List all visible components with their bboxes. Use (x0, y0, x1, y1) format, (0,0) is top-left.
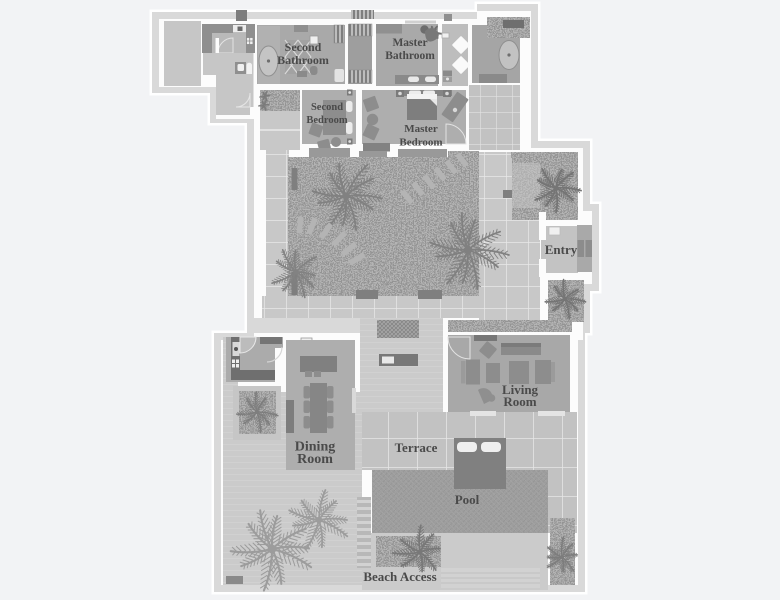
svg-text:Master: Master (392, 37, 427, 49)
svg-text:Terrace: Terrace (395, 440, 438, 455)
svg-text:Room: Room (503, 394, 536, 409)
svg-text:Master: Master (404, 123, 438, 135)
svg-text:Room: Room (297, 452, 333, 467)
svg-text:Beach Access: Beach Access (363, 569, 436, 584)
svg-text:Bedroom: Bedroom (306, 115, 347, 126)
svg-text:Second: Second (285, 40, 322, 54)
svg-text:Entry: Entry (545, 242, 578, 257)
svg-text:Bedroom: Bedroom (399, 137, 442, 149)
svg-text:Bathroom: Bathroom (385, 50, 435, 62)
svg-text:Bathroom: Bathroom (277, 53, 329, 67)
svg-text:Pool: Pool (455, 492, 480, 507)
svg-text:Second: Second (311, 102, 343, 113)
